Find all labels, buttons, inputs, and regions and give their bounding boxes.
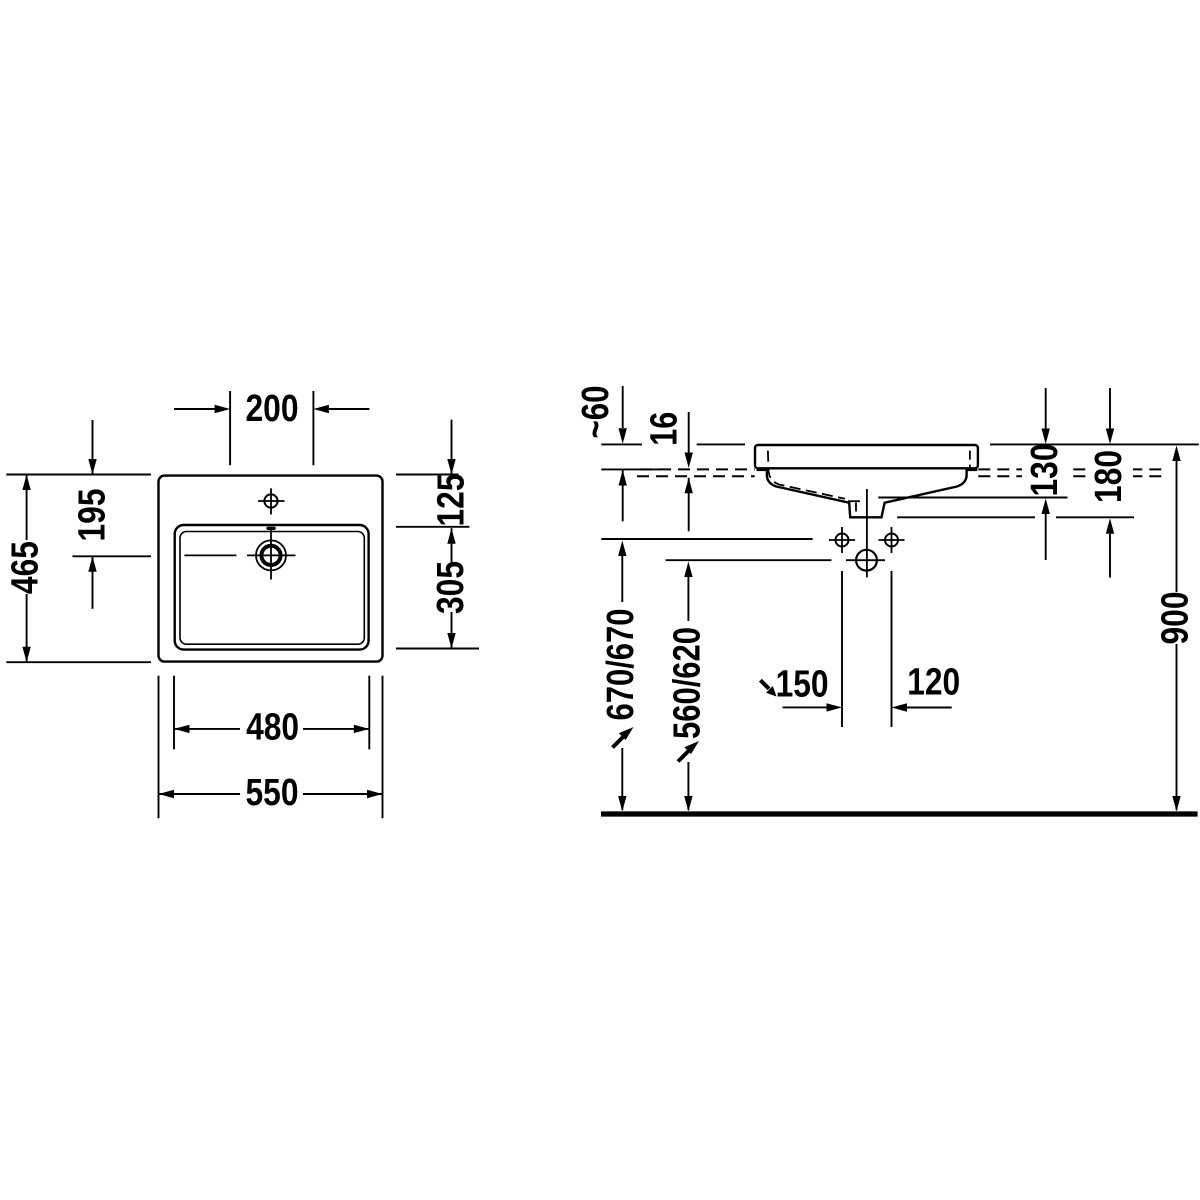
svg-text:120: 120: [907, 662, 960, 704]
svg-text:550: 550: [246, 772, 299, 814]
svg-text:150: 150: [776, 664, 829, 706]
svg-text:16: 16: [644, 412, 686, 446]
svg-text:130: 130: [1024, 444, 1066, 497]
svg-text:465: 465: [4, 541, 46, 594]
svg-text:670/670: 670/670: [600, 609, 642, 721]
svg-text:560/620: 560/620: [667, 627, 709, 739]
svg-text:200: 200: [246, 388, 299, 430]
svg-text:~60: ~60: [575, 386, 617, 439]
svg-text:125: 125: [431, 474, 473, 527]
svg-text:900: 900: [1155, 592, 1197, 645]
svg-text:195: 195: [72, 489, 114, 542]
svg-text:180: 180: [1088, 450, 1130, 503]
svg-text:305: 305: [430, 561, 472, 614]
svg-text:480: 480: [246, 707, 299, 749]
